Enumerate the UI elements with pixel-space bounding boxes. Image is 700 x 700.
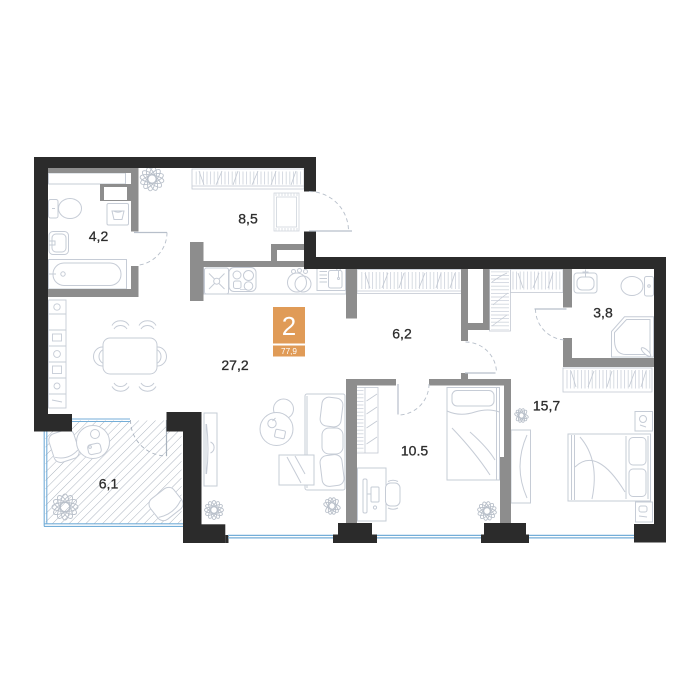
svg-text:77,9: 77,9 [281,347,297,356]
svg-text:10.5: 10.5 [401,443,428,459]
svg-text:15,7: 15,7 [533,398,560,414]
svg-text:2: 2 [282,311,296,341]
svg-text:3,8: 3,8 [593,305,613,321]
svg-text:6,1: 6,1 [99,476,119,492]
svg-text:6,2: 6,2 [392,326,412,342]
svg-text:4,2: 4,2 [89,228,109,244]
svg-text:27,2: 27,2 [221,357,248,373]
svg-text:8,5: 8,5 [238,211,258,227]
